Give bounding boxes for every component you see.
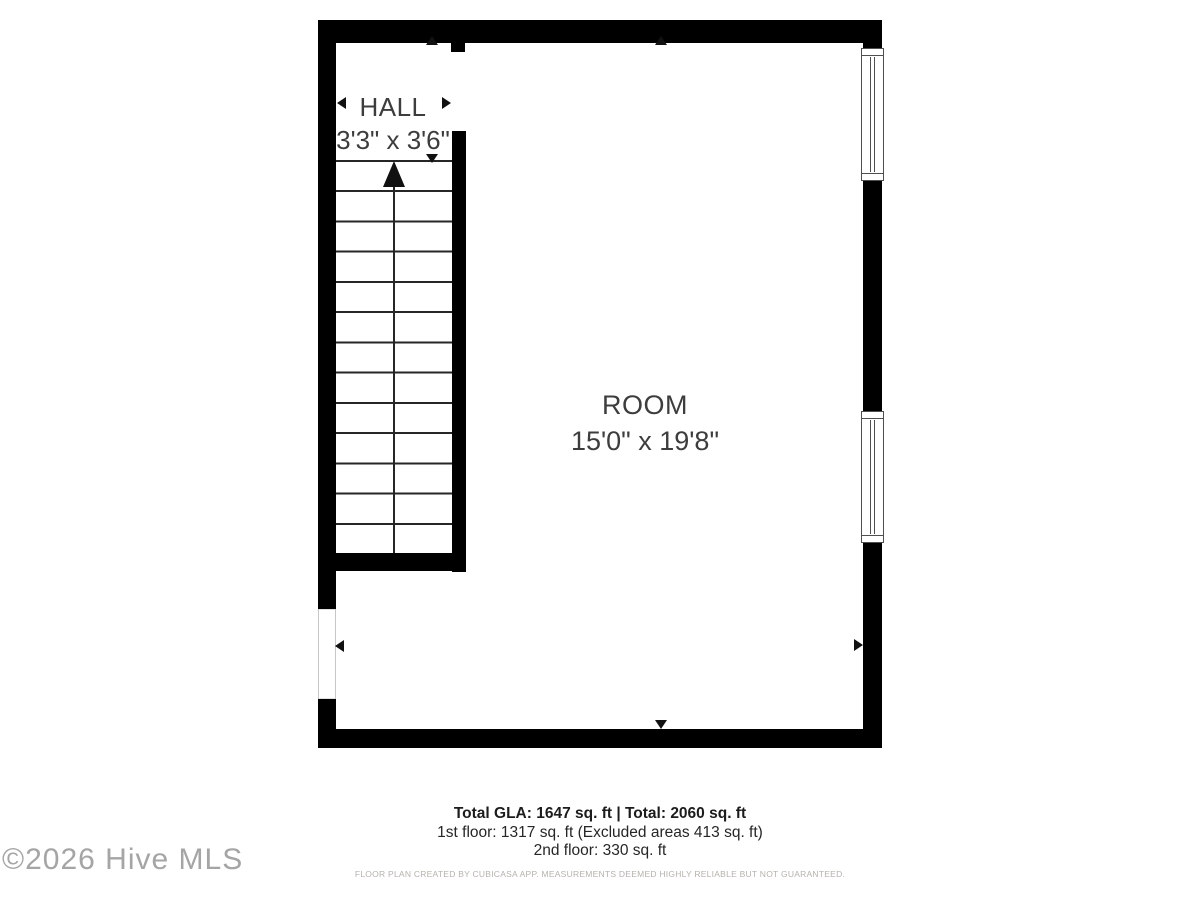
total-gla-text: Total GLA: 1647 sq. ft | Total: 2060 sq.…: [0, 805, 1200, 824]
window-mullion: [870, 420, 875, 534]
arrow-right-hall-icon: [442, 97, 451, 109]
window-upper: [861, 48, 884, 181]
arrow-down-room-icon: [655, 720, 667, 729]
floor-plan-page: HALL 3'3" x 3'6" ROOM 15'0" x 19'8" Tota…: [0, 0, 1200, 900]
mls-watermark: ©2026 Hive MLS: [2, 843, 243, 877]
wall-stair-bottom: [336, 553, 466, 571]
room-label: ROOM: [545, 391, 745, 421]
first-floor-text: 1st floor: 1317 sq. ft (Excluded areas 4…: [0, 824, 1200, 843]
room-dimensions: 15'0" x 19'8": [545, 427, 745, 457]
wall-top: [318, 20, 882, 43]
arrow-left-hall-icon: [337, 97, 346, 109]
wall-divider: [452, 131, 466, 572]
wall-right-below-window: [863, 543, 882, 748]
window-mullion: [870, 57, 875, 172]
arrow-left-opening-icon: [335, 640, 344, 652]
arrow-up-room-icon: [655, 36, 667, 45]
arrow-right-room-icon: [854, 639, 863, 651]
stair-walkline: [393, 186, 395, 553]
stair-up-arrow-icon: [383, 161, 405, 187]
wall-opening-left: [318, 609, 336, 699]
window-lower: [861, 411, 884, 543]
wall-left-upper: [318, 20, 336, 609]
arrow-up-hall-icon: [426, 36, 438, 45]
wall-bottom: [318, 729, 882, 748]
wall-divider-stub: [451, 43, 465, 52]
wall-right-between-windows: [863, 181, 882, 411]
arrow-down-hall-icon: [426, 154, 438, 163]
wall-right-above-window: [863, 20, 882, 49]
